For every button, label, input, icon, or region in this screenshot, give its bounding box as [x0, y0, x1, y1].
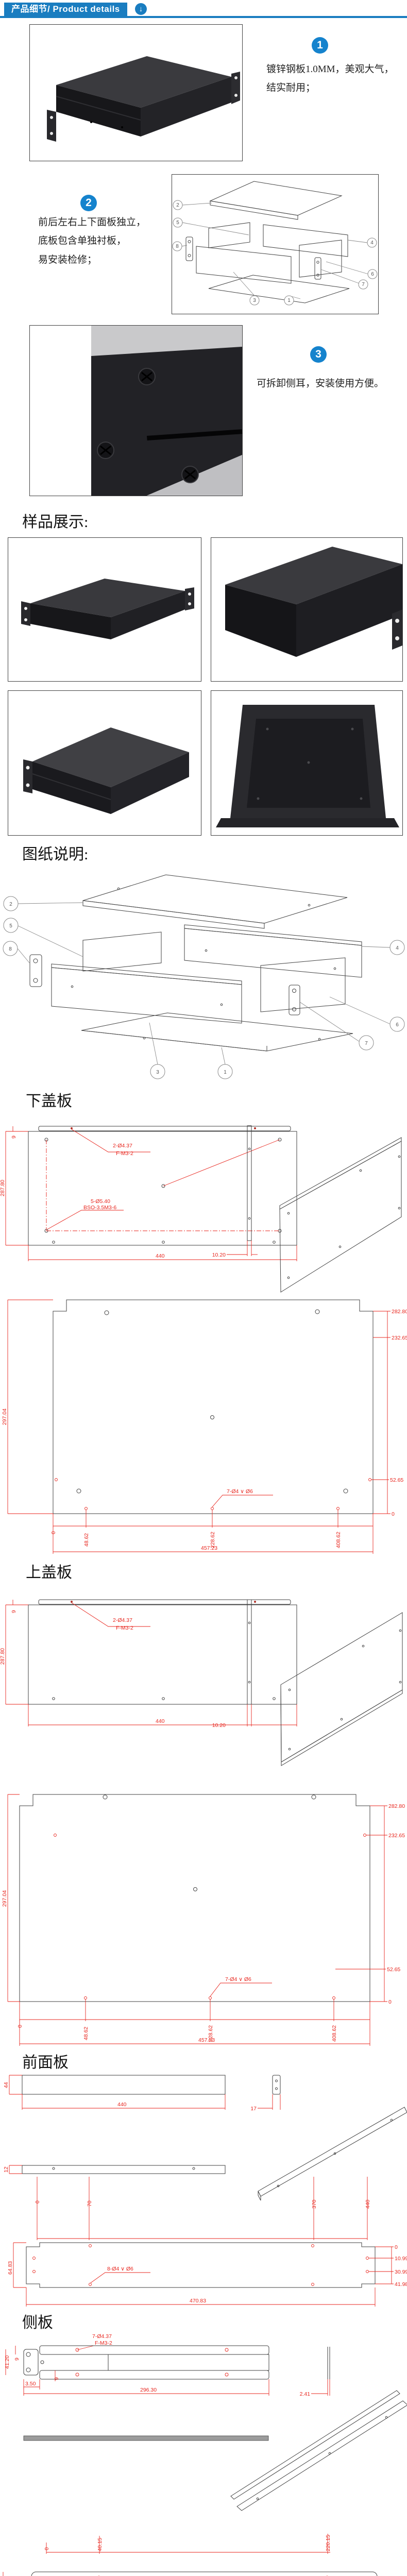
svg-text:282.80: 282.80	[392, 1309, 407, 1315]
svg-text:F-M3-2: F-M3-2	[116, 1625, 133, 1631]
svg-text:0: 0	[388, 1999, 392, 2005]
svg-text:41.98: 41.98	[395, 2281, 407, 2287]
svg-text:7-Ø4 ∨ Ø6: 7-Ø4 ∨ Ø6	[227, 1488, 253, 1495]
svg-text:40.15: 40.15	[97, 2538, 103, 2551]
svg-text:0: 0	[44, 2547, 50, 2550]
svg-text:9: 9	[54, 2377, 60, 2380]
svg-text:440: 440	[156, 1253, 165, 1259]
svg-text:7-Ø4 ∨ Ø6: 7-Ø4 ∨ Ø6	[225, 1976, 251, 1982]
svg-text:48.62: 48.62	[83, 2027, 89, 2040]
svg-text:10.20: 10.20	[212, 1252, 226, 1258]
bottom-cover-side: 10.20	[212, 1126, 258, 1258]
feature-2-line-1: 前后左右上下面板独立，	[38, 214, 146, 228]
svg-text:220.15: 220.15	[325, 2535, 331, 2551]
svg-text:0: 0	[392, 1511, 395, 1517]
feature-3-line-1: 可拆卸侧耳，安装使用方便。	[257, 376, 384, 389]
drawing-top-cover: 2-Ø4.37 F-M3-2 287.80 9 440 10.20 7-Ø4 ∨…	[0, 1579, 407, 2053]
svg-text:2.41: 2.41	[300, 2391, 311, 2397]
svg-text:408.62: 408.62	[335, 1532, 342, 1548]
drawing-side-panel: 7-Ø4.37 F-M3-2 41.20 9 9 3.50 296.30 2.4…	[0, 2329, 407, 2576]
svg-text:2-Ø4.37: 2-Ø4.37	[113, 1617, 132, 1623]
svg-text:370: 370	[311, 2199, 317, 2209]
exploded-small-parts	[186, 181, 349, 303]
side-panel-flat: 0 40.15 220.15 Ø4.37 41.69 28.20 24.10 4…	[2, 2534, 397, 2576]
svg-text:457.23: 457.23	[201, 1545, 217, 1551]
svg-text:440: 440	[365, 2199, 371, 2209]
top-cover-iso	[281, 1613, 402, 1766]
drawing-heading: 图纸说明:	[22, 841, 88, 864]
svg-text:5: 5	[176, 220, 179, 226]
svg-text:287.80: 287.80	[0, 1648, 6, 1665]
sample-photo-2	[211, 537, 403, 682]
svg-text:52.65: 52.65	[390, 1477, 403, 1483]
svg-text:232.65: 232.65	[388, 1833, 405, 1839]
svg-text:5: 5	[9, 923, 12, 929]
exploded-large-callouts: 2 5 8 4 6 7 3 1	[3, 896, 404, 1079]
feature-1-line-1: 镀锌钢板1.0MM，美观大气，	[266, 61, 394, 75]
svg-text:8-Ø4 ∨ Ø6: 8-Ø4 ∨ Ø6	[107, 2266, 133, 2272]
feature-2-badge: 2	[80, 195, 97, 211]
top-cover-side: 10.20	[212, 1600, 258, 1728]
sample-4-shapes	[216, 705, 399, 827]
feature-1-line-2: 结实耐用；	[266, 80, 315, 94]
top-cover-plan: 2-Ø4.37 F-M3-2 287.80 9 440	[0, 1600, 297, 1726]
exploded-view-small: 2 5 8 4 6 7 3 1	[172, 174, 379, 314]
svg-text:4: 4	[396, 945, 399, 951]
svg-text:7-Ø4.37: 7-Ø4.37	[92, 2333, 112, 2340]
svg-text:12: 12	[3, 2166, 9, 2173]
svg-text:6: 6	[396, 1022, 399, 1028]
svg-text:297.04: 297.04	[2, 1409, 8, 1425]
svg-text:0: 0	[35, 2200, 41, 2204]
svg-text:8: 8	[9, 946, 12, 952]
bottom-cover-iso	[280, 1138, 401, 1292]
corner-photo-shapes	[91, 326, 242, 496]
svg-text:3.50: 3.50	[25, 2381, 36, 2387]
page-title-text: 产品细节/ Product details	[11, 4, 120, 14]
svg-text:457.23: 457.23	[198, 2037, 215, 2043]
bottom-cover-plan: 2-Ø4.37 F-M3-2 5-Ø5.40 BSO-3.5M3-6 287.8…	[0, 1126, 297, 1261]
svg-text:7: 7	[362, 282, 365, 287]
svg-text:44: 44	[3, 2082, 9, 2088]
svg-text:52.65: 52.65	[387, 1967, 400, 1973]
sample-heading: 样品展示:	[22, 509, 88, 532]
product-photo-corner	[29, 325, 243, 496]
feature-2-line-3: 易安装检修；	[38, 252, 97, 266]
svg-text:7: 7	[365, 1041, 368, 1046]
svg-text:1: 1	[287, 298, 291, 303]
svg-text:440: 440	[156, 1718, 165, 1724]
svg-text:10.99: 10.99	[395, 2256, 407, 2262]
svg-text:30.99: 30.99	[395, 2269, 407, 2275]
svg-text:2: 2	[176, 202, 179, 208]
svg-text:48.62: 48.62	[83, 1533, 90, 1547]
svg-text:1: 1	[224, 1070, 227, 1075]
drawing-bottom-cover: 2-Ø4.37 F-M3-2 5-Ø5.40 BSO-3.5M3-6 287.8…	[0, 1108, 407, 1564]
svg-text:9: 9	[14, 2358, 20, 2361]
svg-text:0: 0	[50, 1531, 57, 1534]
feature-3-badge: 3	[310, 346, 327, 363]
front-panel-views: 44 440 17 12 0 70 370 440	[3, 2075, 407, 2240]
sample-photo-4	[211, 690, 403, 836]
sample-3-shapes	[23, 727, 189, 814]
svg-text:470.83: 470.83	[190, 2298, 206, 2304]
exploded-large-parts	[30, 875, 362, 1051]
sample-2-shapes	[225, 547, 402, 657]
svg-text:3: 3	[253, 298, 256, 303]
svg-text:8: 8	[176, 244, 179, 249]
drawing-front-panel: 44 440 17 12 0 70 370 440	[0, 2069, 407, 2311]
svg-text:232.65: 232.65	[392, 1335, 407, 1341]
svg-text:440: 440	[117, 2102, 127, 2108]
svg-text:70: 70	[87, 2200, 93, 2207]
down-arrow-icon: ↓	[135, 3, 147, 15]
svg-text:F-M3-2: F-M3-2	[95, 2340, 112, 2346]
svg-text:297.04: 297.04	[2, 1890, 8, 1907]
svg-text:296.30: 296.30	[140, 2387, 157, 2393]
svg-text:282.80: 282.80	[388, 1803, 405, 1809]
feature-1-badge: 1	[312, 37, 328, 54]
svg-text:2: 2	[9, 902, 12, 907]
sample-photo-1	[8, 537, 201, 682]
svg-text:BSO-3.5M3-6: BSO-3.5M3-6	[83, 1205, 116, 1211]
bottom-cover-flat: 7-Ø4 ∨ Ø6 297.04 282.80 232.65 52.65 0 0…	[2, 1300, 407, 1554]
page-title: 产品细节/ Product details	[4, 3, 127, 16]
sample-photo-3	[8, 690, 201, 836]
svg-text:2-Ø4.37: 2-Ø4.37	[113, 1143, 132, 1149]
product-photo-main	[29, 24, 243, 161]
svg-text:10.20: 10.20	[212, 1722, 226, 1728]
svg-text:9: 9	[11, 1136, 17, 1139]
svg-text:64.83: 64.83	[7, 2261, 13, 2275]
svg-text:0: 0	[17, 2025, 23, 2028]
svg-text:17: 17	[250, 2106, 257, 2112]
exploded-view-large: 2 5 8 4 6 7 3 1	[0, 868, 407, 1084]
header-divider	[0, 16, 407, 18]
svg-text:F-M3-2: F-M3-2	[116, 1150, 133, 1157]
svg-text:3: 3	[156, 1070, 159, 1075]
svg-text:4: 4	[370, 240, 374, 246]
sample-1-shapes	[21, 579, 194, 639]
svg-text:5-Ø5.40: 5-Ø5.40	[91, 1198, 110, 1205]
svg-text:0: 0	[395, 2244, 398, 2250]
side-panel-main: 7-Ø4.37 F-M3-2 41.20 9 9 3.50 296.30 2.4…	[4, 2333, 407, 2511]
svg-text:6: 6	[371, 272, 374, 277]
feature-2-line-2: 底板包含单独衬板，	[38, 233, 126, 247]
svg-text:287.80: 287.80	[0, 1180, 6, 1196]
chassis-photo-shapes	[47, 56, 240, 142]
svg-text:9: 9	[11, 1610, 17, 1613]
front-panel-flat: 8-Ø4 ∨ Ø6 64.83 0 10.99 30.99 41.98 470.…	[7, 2243, 407, 2307]
svg-text:41.20: 41.20	[4, 2355, 10, 2369]
svg-text:408.62: 408.62	[331, 2025, 337, 2042]
top-cover-flat: 7-Ø4 ∨ Ø6 297.04 282.80 232.65 52.65 0 0…	[2, 1794, 405, 2046]
